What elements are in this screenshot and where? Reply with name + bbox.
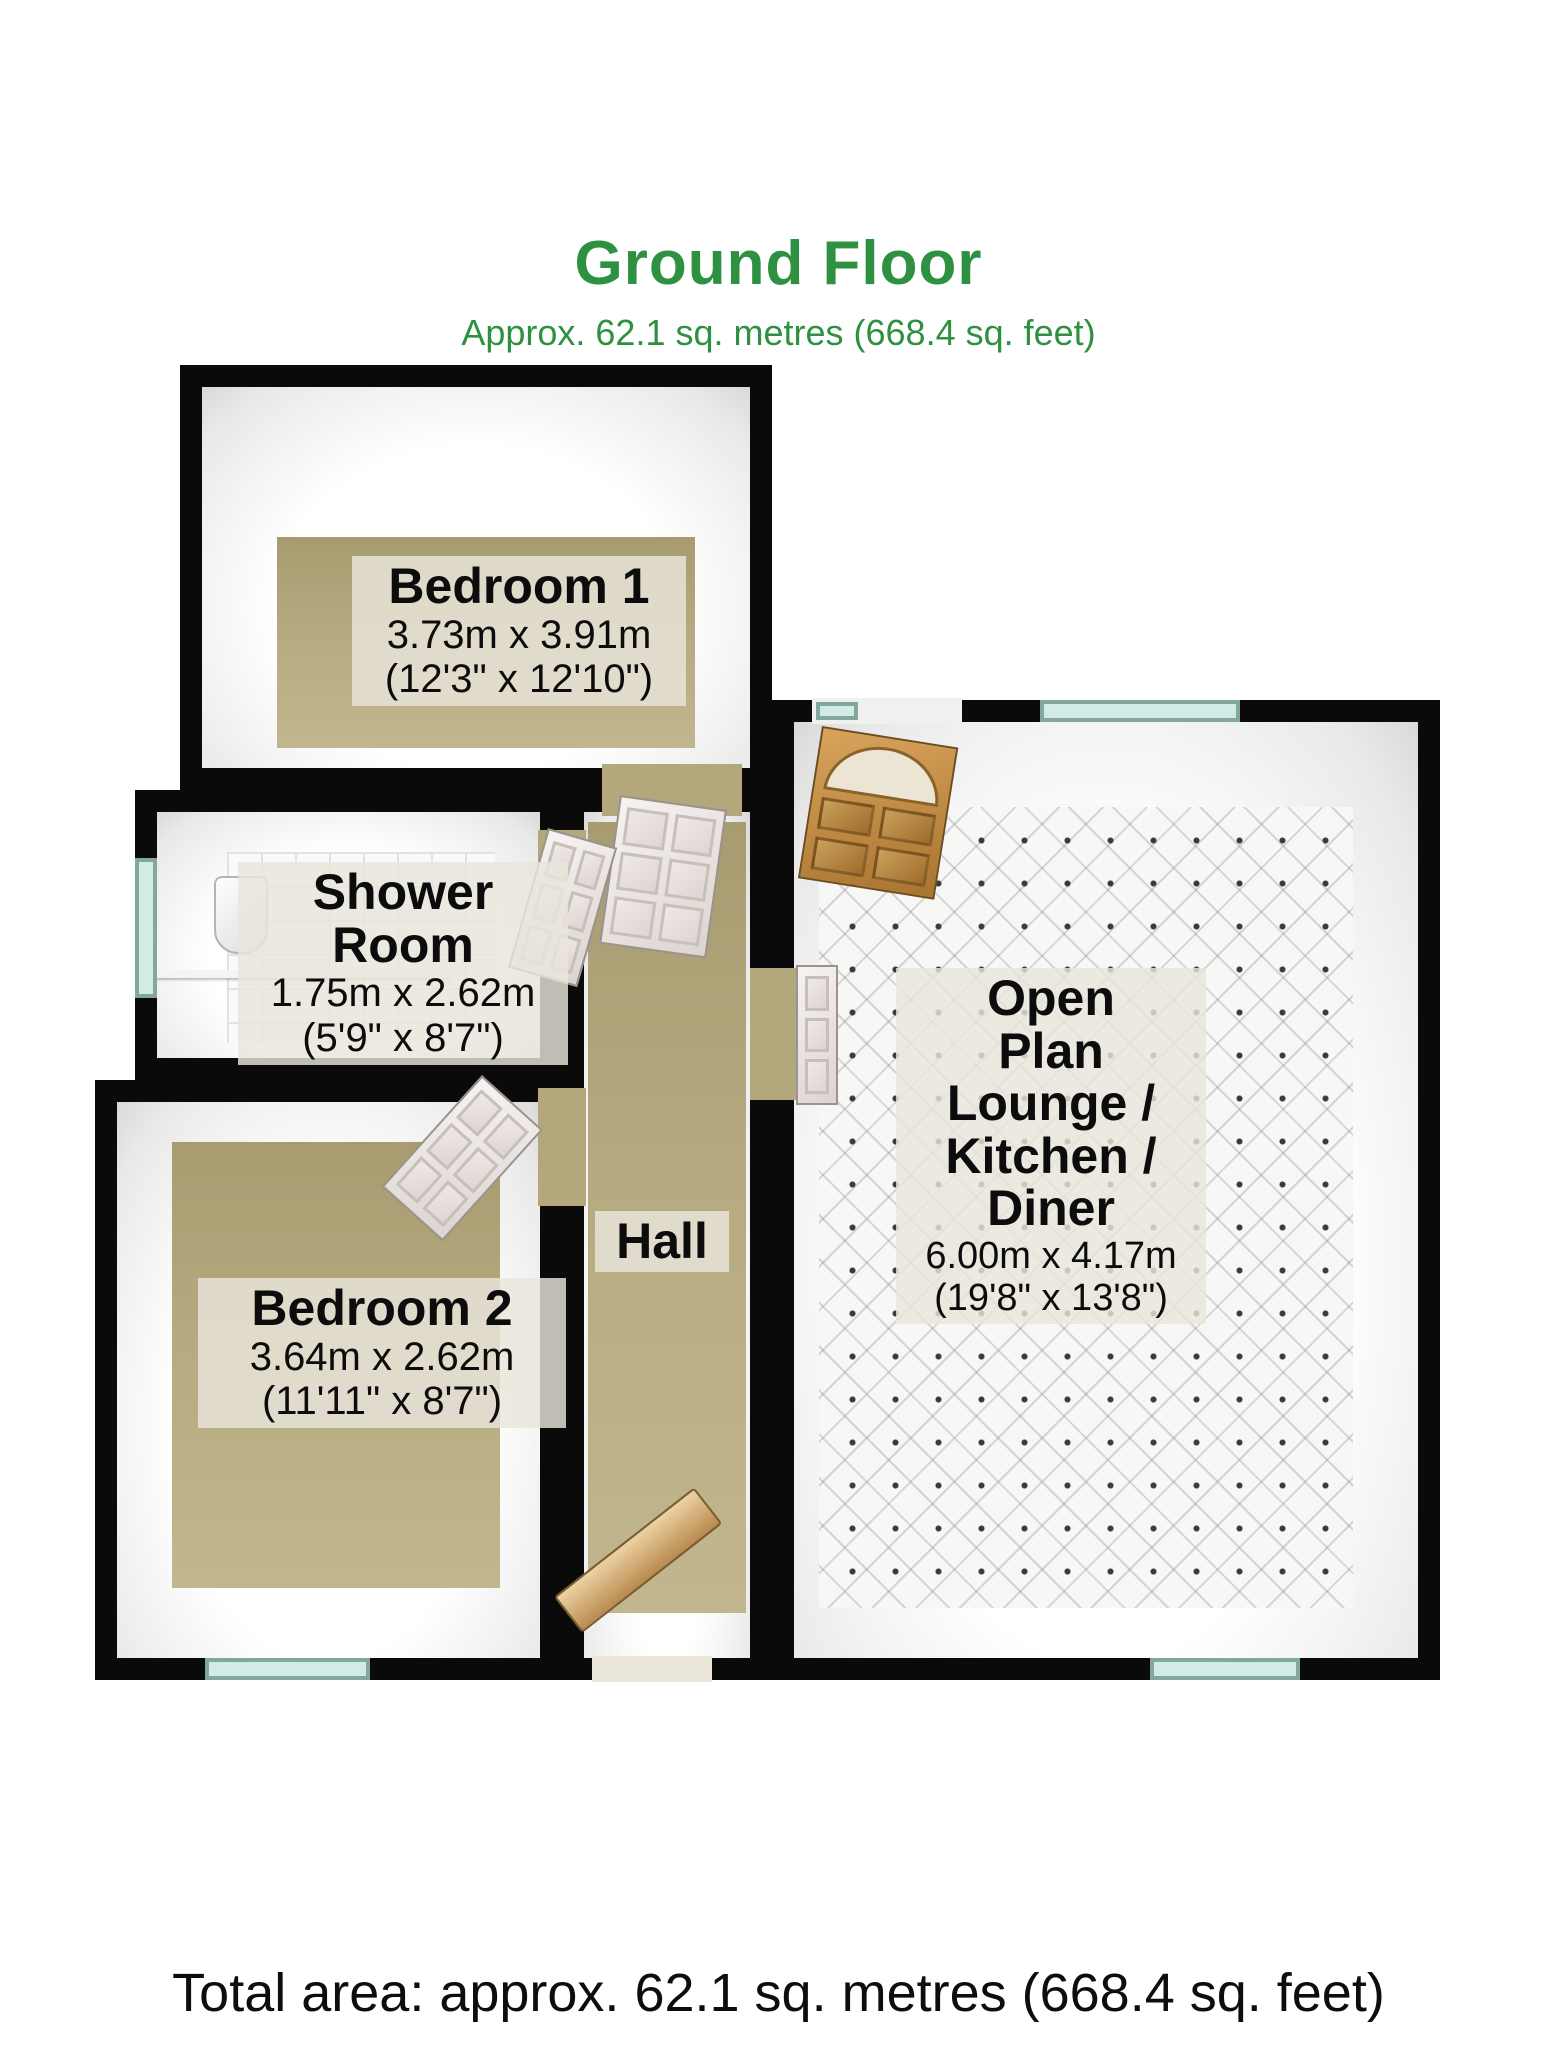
open-plan-name-line3: Lounge / (904, 1077, 1198, 1130)
shower-name: Shower Room (246, 866, 560, 971)
hall-name: Hall (603, 1215, 721, 1268)
shower-dims-metric: 1.75m x 2.62m (246, 971, 560, 1016)
shower-dims-imperial: (5'9" x 8'7") (246, 1016, 560, 1061)
bedroom-1-dims-imperial: (12'3" x 12'10") (360, 657, 678, 702)
shower-label: Shower Room 1.75m x 2.62m (5'9" x 8'7") (238, 862, 568, 1065)
bedroom-2-dims-imperial: (11'11" x 8'7") (206, 1379, 558, 1424)
doorway-open-plan (750, 968, 796, 1100)
total-area-text: Total area: approx. 62.1 sq. metres (668… (0, 1962, 1557, 2024)
front-door-fanlight (823, 739, 946, 807)
hall-label: Hall (595, 1211, 729, 1272)
page-title: Ground Floor (0, 228, 1557, 299)
open-plan-door (796, 965, 838, 1105)
bedroom-1-dims-metric: 3.73m x 3.91m (360, 613, 678, 658)
floorplan-page: Ground Floor Approx. 62.1 sq. metres (66… (0, 0, 1557, 2048)
open-plan-name-line5: Diner (904, 1182, 1198, 1235)
bedroom-1-label: Bedroom 1 3.73m x 3.91m (12'3" x 12'10") (352, 556, 686, 706)
doorway-bedroom-2 (538, 1088, 586, 1206)
bedroom-1-door (599, 795, 727, 959)
open-plan-rear-window (1150, 1658, 1300, 1680)
doorway-rear-entrance (592, 1656, 712, 1682)
open-plan-dims-metric: 6.00m x 4.17m (904, 1235, 1198, 1278)
page-subtitle: Approx. 62.1 sq. metres (668.4 sq. feet) (0, 312, 1557, 354)
open-plan-name-line4: Kitchen / (904, 1130, 1198, 1183)
bedroom-2-window (205, 1658, 370, 1680)
open-plan-front-window (1040, 700, 1240, 722)
bedroom-2-dims-metric: 3.64m x 2.62m (206, 1335, 558, 1380)
open-plan-dims-imperial: (19'8" x 13'8") (904, 1277, 1198, 1320)
shower-window (135, 858, 157, 998)
bedroom-2-label: Bedroom 2 3.64m x 2.62m (11'11" x 8'7") (198, 1278, 566, 1428)
bedroom-2-name: Bedroom 2 (206, 1282, 558, 1335)
front-door-sidelight (816, 702, 858, 720)
open-plan-name-line1: Open (904, 972, 1198, 1025)
front-entrance-door (798, 726, 958, 900)
open-plan-name-line2: Plan (904, 1025, 1198, 1078)
open-plan-label: Open Plan Lounge / Kitchen / Diner 6.00m… (896, 968, 1206, 1324)
bedroom-1-name: Bedroom 1 (360, 560, 678, 613)
